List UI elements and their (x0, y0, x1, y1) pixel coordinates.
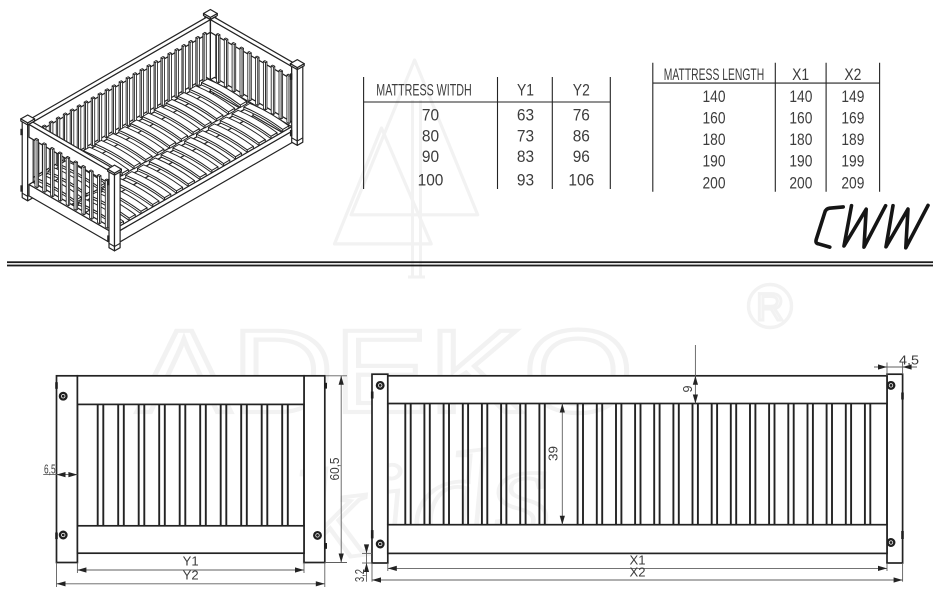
svg-text:189: 189 (841, 130, 864, 149)
svg-text:X2: X2 (630, 565, 646, 580)
svg-text:96: 96 (573, 147, 590, 166)
svg-text:209: 209 (841, 173, 864, 192)
svg-text:Y2: Y2 (183, 568, 199, 583)
svg-text:MATTRESS WITDH: MATTRESS WITDH (376, 81, 471, 100)
svg-text:kids: kids (286, 417, 560, 590)
svg-text:MATTRESS LENGTH: MATTRESS LENGTH (664, 65, 764, 84)
svg-text:6,5: 6,5 (44, 461, 56, 476)
svg-text:180: 180 (703, 130, 726, 149)
svg-text:149: 149 (841, 87, 864, 106)
svg-text:106: 106 (568, 171, 594, 190)
svg-text:X1: X1 (792, 65, 809, 84)
svg-text:Y1: Y1 (183, 554, 199, 569)
svg-text:60,5: 60,5 (327, 458, 342, 481)
svg-text:160: 160 (789, 108, 812, 127)
svg-text:R: R (756, 287, 783, 329)
svg-text:140: 140 (789, 87, 812, 106)
svg-text:80: 80 (422, 126, 439, 145)
svg-text:160: 160 (703, 108, 726, 127)
svg-text:100: 100 (418, 171, 444, 190)
svg-text:93: 93 (517, 171, 534, 190)
svg-text:200: 200 (789, 173, 812, 192)
svg-text:Y1: Y1 (517, 81, 534, 100)
svg-text:76: 76 (573, 106, 590, 125)
svg-text:83: 83 (517, 147, 534, 166)
svg-text:X2: X2 (844, 65, 861, 84)
svg-text:90: 90 (422, 147, 439, 166)
svg-text:70: 70 (422, 106, 439, 125)
svg-text:169: 169 (841, 108, 864, 127)
svg-text:63: 63 (517, 106, 534, 125)
svg-text:9: 9 (680, 386, 695, 393)
svg-text:140: 140 (703, 87, 726, 106)
svg-text:190: 190 (703, 152, 726, 171)
svg-text:190: 190 (789, 152, 812, 171)
svg-text:199: 199 (841, 152, 864, 171)
svg-text:86: 86 (573, 126, 590, 145)
svg-text:200: 200 (703, 173, 726, 192)
svg-text:3,2: 3,2 (352, 569, 367, 582)
svg-text:4,5: 4,5 (899, 353, 919, 368)
svg-text:Y2: Y2 (573, 81, 590, 100)
svg-text:39: 39 (546, 446, 561, 461)
svg-text:73: 73 (517, 126, 534, 145)
svg-text:180: 180 (789, 130, 812, 149)
